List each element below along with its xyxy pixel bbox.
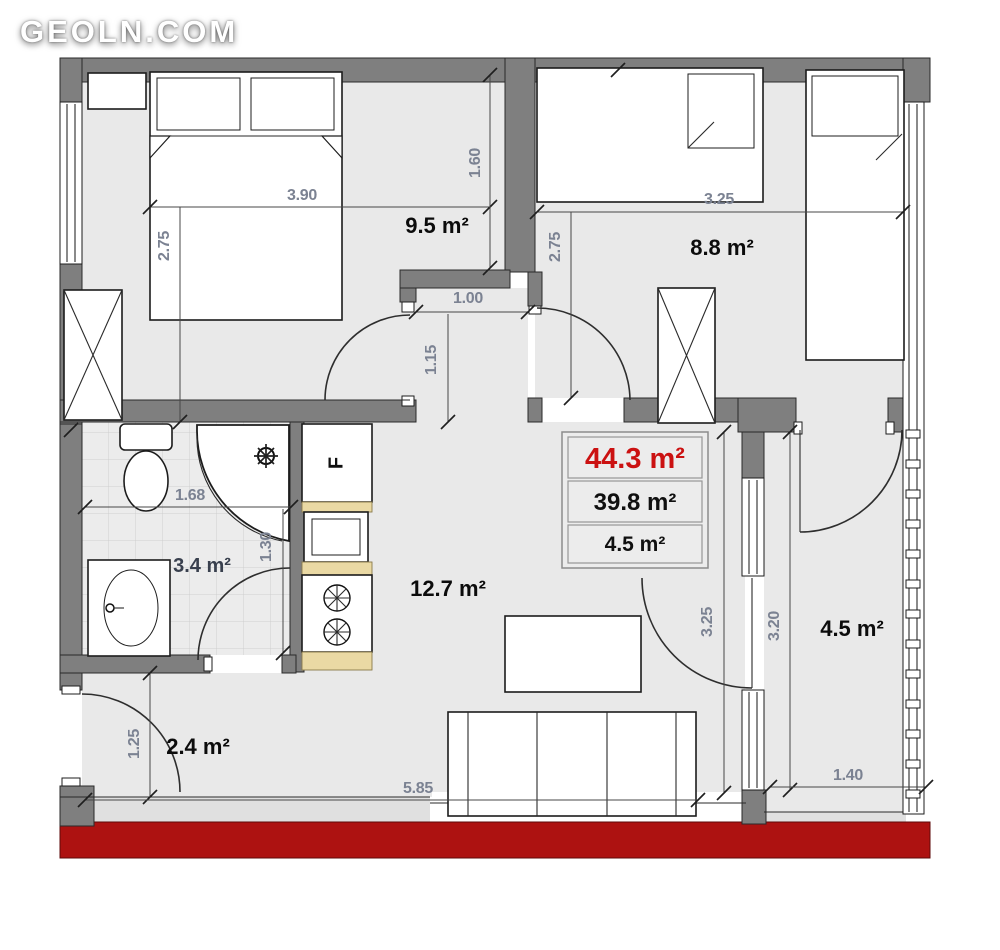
- summary-extra-area: 4.5 m²: [605, 533, 666, 556]
- floorplan-page: F: [0, 0, 1000, 950]
- window-living-balcony-lower: [742, 690, 764, 790]
- kitchen-column: F: [302, 424, 372, 670]
- counter-strip-1: [302, 502, 372, 512]
- red-facade-band: [60, 822, 930, 858]
- counter-strip-3: [302, 652, 372, 670]
- wall-living-balcony-top: [742, 432, 764, 478]
- dim-living-height: 3.25: [699, 607, 716, 637]
- balcony-area-label: 4.5 m²: [820, 616, 884, 641]
- wall-right-top: [903, 58, 930, 102]
- balcony-door-threshold: [796, 398, 888, 432]
- wall-bathroom-bottom: [60, 655, 210, 673]
- burner-2: [324, 619, 350, 645]
- wall-bedroom2-bottom-stub: [528, 398, 542, 422]
- dim-bath-height: 1.30: [258, 532, 275, 562]
- single-bed-top: [537, 68, 763, 202]
- nightstand: [88, 73, 146, 109]
- bedroom1-area-label: 9.5 m²: [405, 213, 469, 238]
- living-area-label: 12.7 m²: [410, 576, 486, 601]
- dim-bed1-right: 1.60: [467, 148, 484, 178]
- wall-bedroom2-door-jamb: [528, 272, 542, 306]
- floorplan-drawing: F: [0, 0, 1000, 950]
- wall-bedroom1-door-jamb: [400, 288, 416, 302]
- dim-balcony-height: 3.20: [766, 611, 783, 641]
- wall-balcony-top-left: [738, 398, 796, 432]
- stove-icon: [302, 575, 372, 652]
- wall-corridor-top: [400, 270, 510, 288]
- sink-icon: [88, 560, 170, 656]
- faucet: [106, 604, 114, 612]
- bedroom2-area-label: 8.8 m²: [690, 235, 754, 260]
- geoln-watermark-logo: GEOLN.COM: [20, 14, 238, 50]
- dim-niche-height: 1.15: [423, 345, 440, 375]
- wall-living-balcony-bottom: [742, 790, 766, 824]
- pillow: [812, 76, 898, 136]
- dim-hall-height: 1.25: [126, 729, 143, 759]
- dim-bed2-width: 3.25: [704, 191, 734, 208]
- fridge-label: F: [325, 457, 347, 469]
- wardrobe-bedroom1: [64, 290, 122, 420]
- dim-niche-width: 1.00: [453, 290, 483, 307]
- single-bed-right: [806, 70, 904, 360]
- window-living-balcony-upper: [742, 478, 764, 576]
- toilet-icon: [120, 424, 172, 511]
- hall-area-label: 2.4 m²: [166, 734, 230, 759]
- dim-bed1-width: 3.90: [287, 187, 317, 204]
- wardrobe-bedroom2: [658, 288, 715, 423]
- dim-bath-width: 1.68: [175, 487, 205, 504]
- counter-strip-2: [302, 562, 372, 575]
- table: [505, 616, 641, 692]
- pillow-left: [157, 78, 240, 130]
- pillow-right: [251, 78, 334, 130]
- bottom-strip-left: [60, 797, 430, 822]
- wall-bedroom-divider: [505, 58, 535, 272]
- dim-balcony-width: 1.40: [833, 767, 863, 784]
- kitchen-sink-icon: [304, 512, 368, 562]
- summary-total-area: 44.3 m²: [585, 443, 685, 475]
- bottom-strip-balcony: [764, 812, 906, 822]
- summary-living-area: 39.8 m²: [594, 489, 677, 516]
- wall-bathroom-bottom-jamb: [282, 655, 296, 673]
- burner-1: [324, 585, 350, 611]
- dim-bottom-width: 5.85: [403, 780, 433, 797]
- bathroom-area-label: 3.4 m²: [173, 555, 231, 577]
- area-summary-box: 44.3 m² 39.8 m² 4.5 m²: [562, 432, 708, 568]
- dim-bed1-height: 2.75: [156, 231, 173, 261]
- wall-left-top: [60, 58, 82, 102]
- pillow: [688, 74, 754, 148]
- dim-bed2-height: 2.75: [547, 232, 564, 262]
- wall-left-bath: [60, 424, 82, 690]
- window-bedroom1-left: [60, 102, 82, 264]
- wall-left-bottom-corner: [60, 786, 94, 826]
